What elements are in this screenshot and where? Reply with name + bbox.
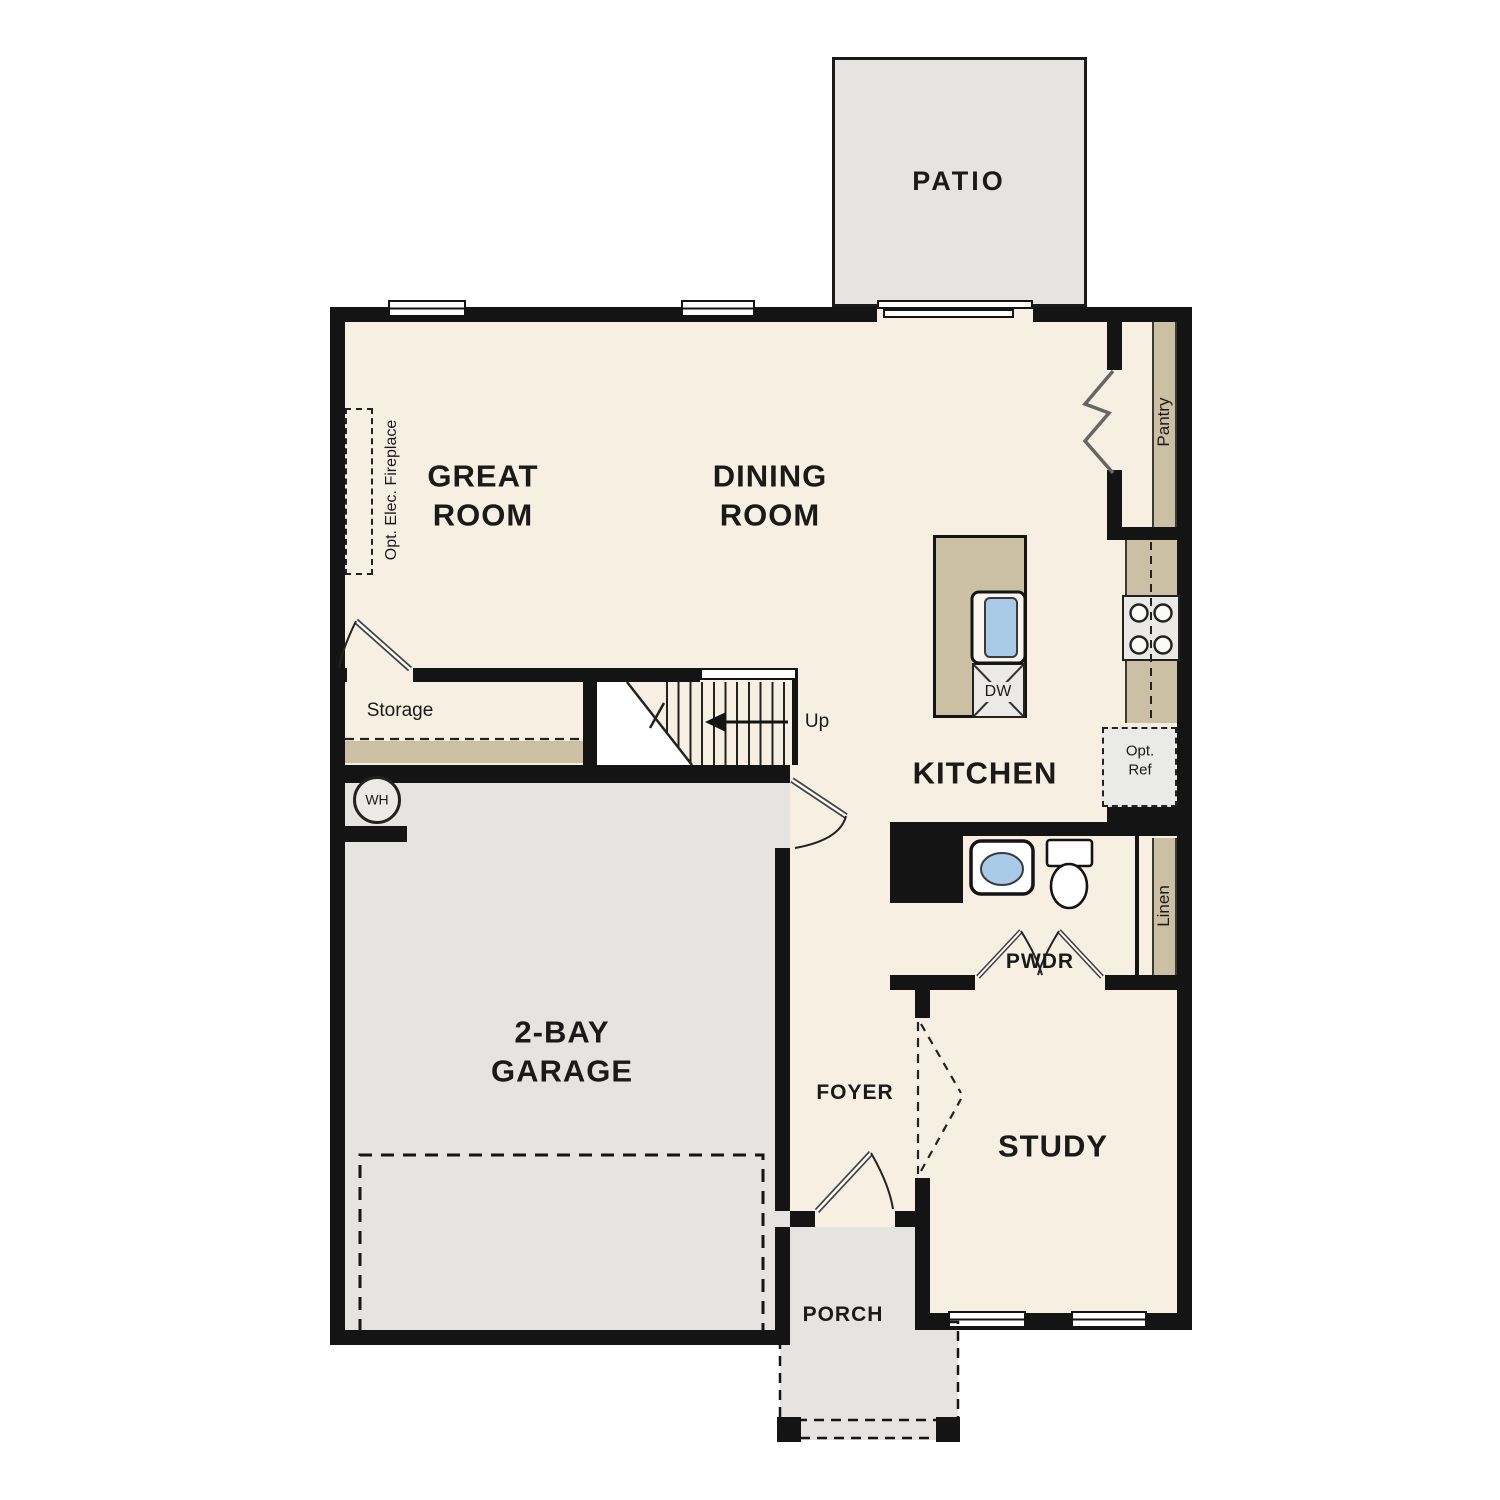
burner-icon — [1155, 637, 1172, 654]
door-swing-arc — [871, 1153, 893, 1209]
door-leaf-core — [356, 621, 410, 669]
island-sink-basin — [985, 598, 1017, 657]
room-label-garage: 2-BAY GARAGE — [491, 1013, 633, 1091]
label-storage: Storage — [367, 699, 434, 723]
room-label-dining-room: DINING ROOM — [713, 457, 828, 535]
room-label-porch: PORCH — [803, 1302, 884, 1328]
room-label-foyer: FOYER — [816, 1080, 893, 1106]
toilet-tank — [1047, 840, 1092, 866]
sink-basin — [981, 853, 1023, 885]
burner-icon — [1131, 605, 1148, 622]
room-label-study: STUDY — [998, 1128, 1108, 1167]
optional-door-leaf — [921, 1024, 961, 1093]
label-dishwasher: DW — [983, 682, 1014, 702]
bifold-door — [1085, 371, 1113, 473]
toilet-bowl — [1051, 864, 1087, 908]
optional-door-leaf — [921, 1099, 961, 1171]
room-label-patio: PATIO — [912, 165, 1006, 199]
label-stairs-up: Up — [805, 710, 829, 734]
label-optional-fireplace: Opt. Elec. Fireplace — [383, 420, 401, 561]
burner-icon — [1155, 605, 1172, 622]
door-leaf-core — [817, 1153, 871, 1211]
room-label-kitchen: KITCHEN — [913, 755, 1058, 794]
door-leaf-core — [792, 780, 846, 816]
room-label-powder: PWDR — [1006, 949, 1074, 975]
burner-icon — [1131, 637, 1148, 654]
stairs-up-arrowhead — [705, 712, 726, 732]
room-label-great-room: GREAT ROOM — [427, 457, 538, 535]
door-swing-arc — [795, 816, 846, 848]
label-linen: Linen — [1154, 885, 1174, 927]
door-swing-arc — [339, 621, 356, 668]
garage-door-apron — [360, 1155, 763, 1332]
plan-linework — [0, 0, 1500, 1500]
stair-break-mask — [597, 682, 692, 765]
label-water-heater: WH — [365, 791, 388, 809]
label-pantry: Pantry — [1154, 397, 1174, 446]
floor-plan: PATIO GREAT ROOM DINING ROOM KITCHEN 2-B… — [0, 0, 1500, 1500]
label-optional-refrigerator: Opt. Ref — [1126, 742, 1154, 780]
